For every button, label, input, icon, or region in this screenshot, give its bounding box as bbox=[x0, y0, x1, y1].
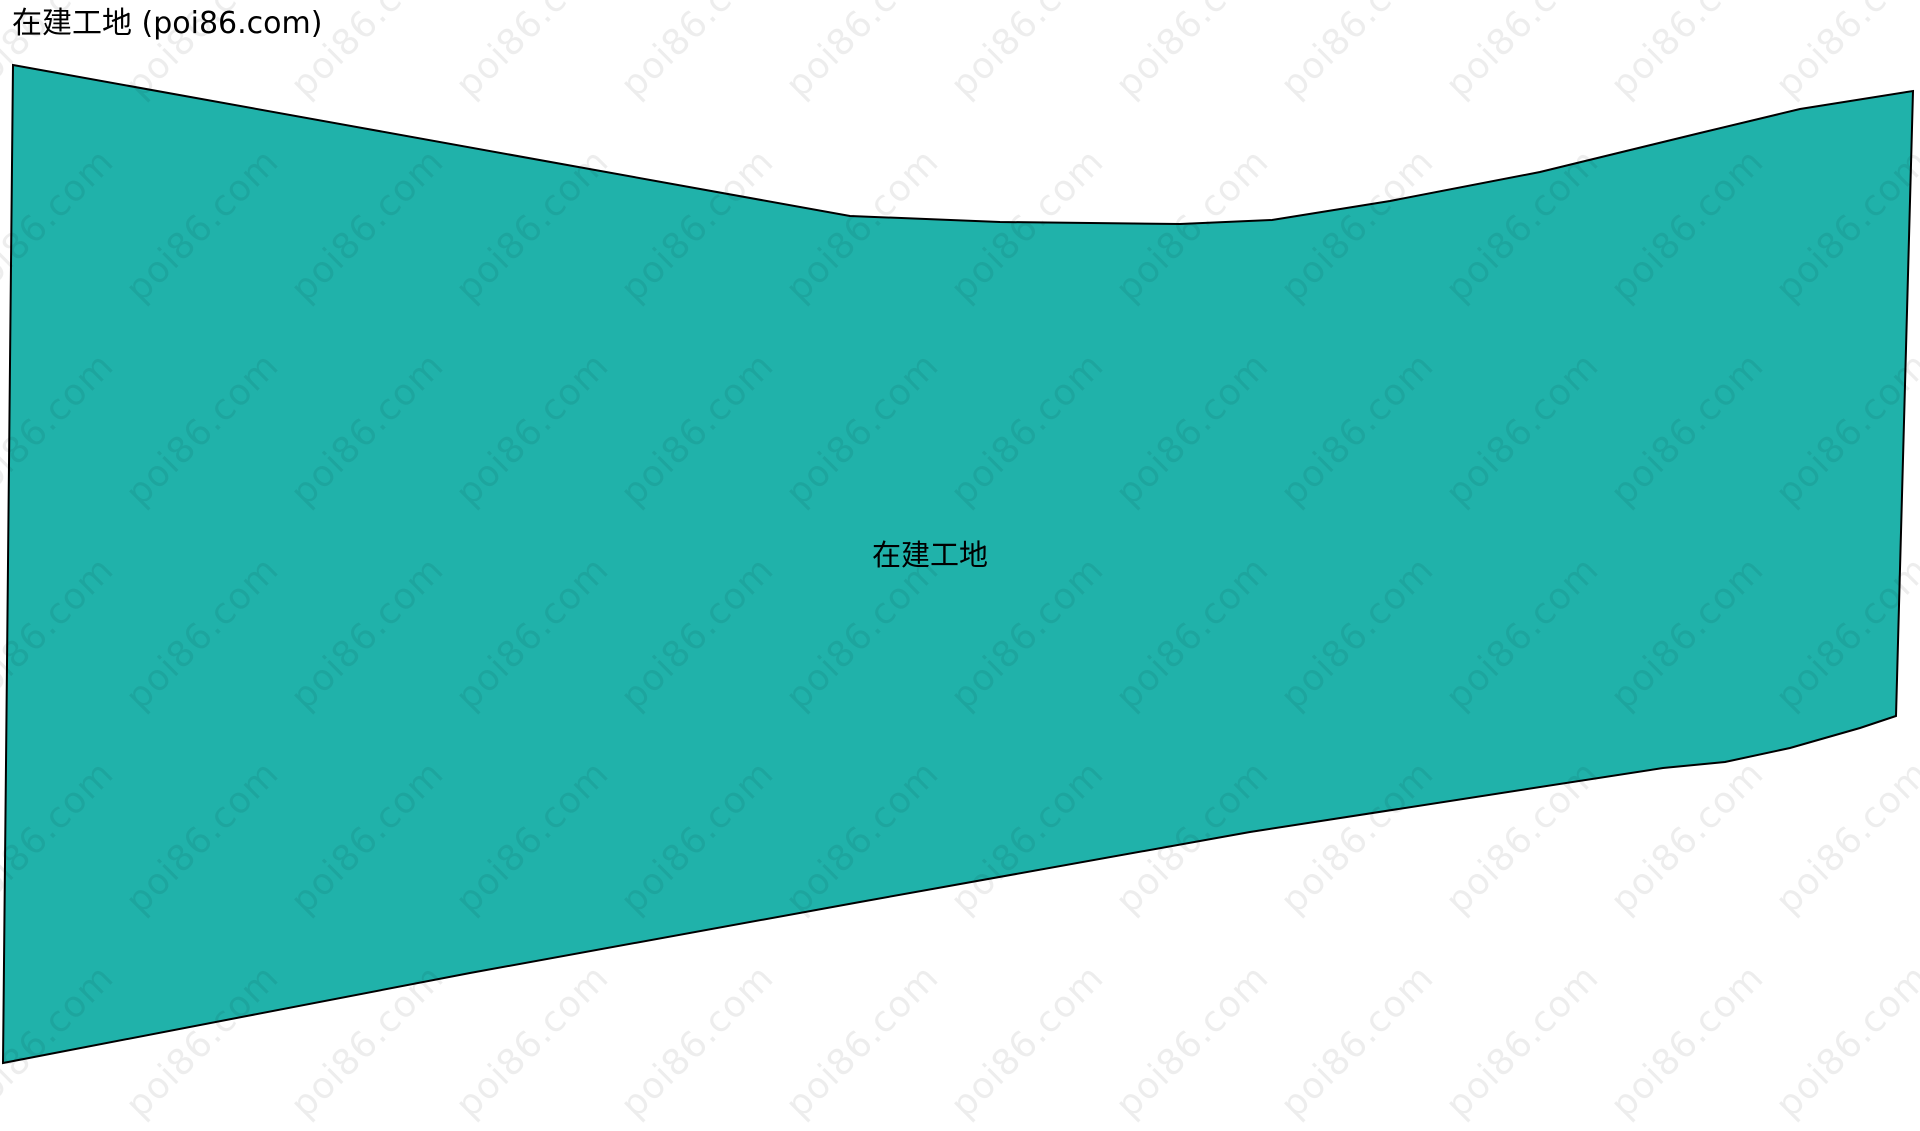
map-canvas: poi86.compoi86.compoi86.compoi86.compoi8… bbox=[0, 0, 1920, 1131]
polygon-label: 在建工地 bbox=[872, 532, 988, 574]
page-title: 在建工地 (poi86.com) bbox=[12, 6, 322, 42]
